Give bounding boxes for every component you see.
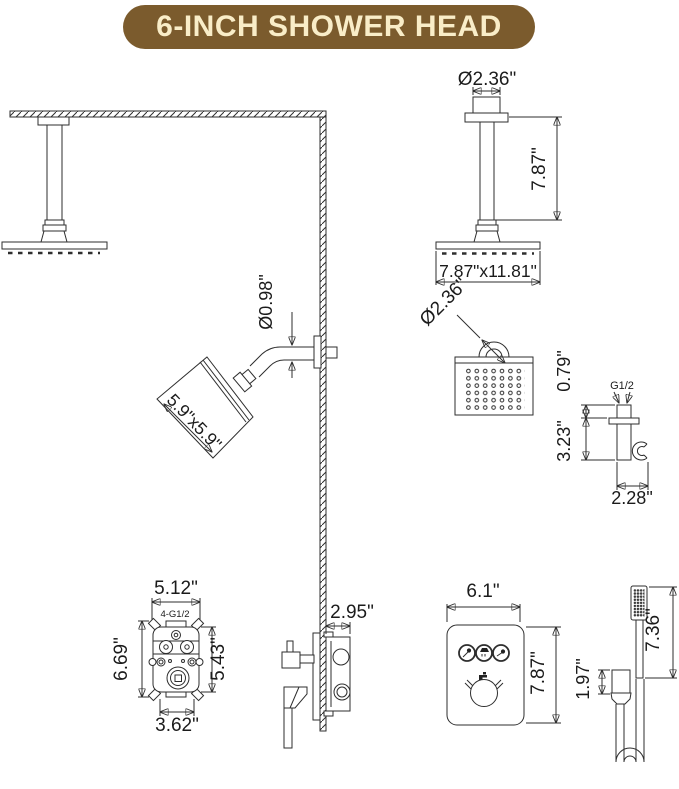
ceiling-shower-drawing [2,117,107,253]
technical-drawing: Ø2.36" 7.87" 7.87"x11.81" Ø2.36" [0,0,679,789]
wand-shower-icon [501,649,505,653]
dim-ceiling-arm-diameter: Ø2.36" [458,69,517,90]
dim-valve-overall-height: 6.69" [111,637,132,681]
hand-shower-icon [467,648,471,652]
spray-holes [465,367,525,410]
dim-holder-body-height: 3.23" [554,420,574,461]
label-holder-thread: G1/2 [610,380,634,392]
hand-shower-holder-drawing: G1/2 0.79" 3.23" 2.28" [554,350,653,508]
dim-valve-body-height: 5.43" [208,637,229,681]
valve-trim-plate-side [313,633,320,720]
valve-handle-side [282,652,300,668]
wall-bracket [612,670,630,693]
valve-side-drawing: 2.95" [282,602,374,748]
dim-valve-depth: 2.95" [330,602,374,623]
dim-ceiling-arm-length: 7.87" [529,147,550,191]
valve-front-drawing: 4-G1/2 5.12" 6.69" 5.43" 3.62" [111,578,229,736]
thermostatic-trim-drawing: 6.1" 7.87" [447,581,561,725]
product-dimension-diagram: 6-INCH SHOWER HEAD [0,0,679,789]
ceiling-mount-detail-drawing: Ø2.36" 7.87" 7.87"x11.81" [436,69,562,285]
dim-wand-length: 7.36" [643,608,664,652]
dim-holder-depth: 2.28" [611,488,652,508]
dim-valve-body-width: 3.62" [155,715,199,736]
shower-head-face-drawing: Ø2.36" [416,274,533,415]
ceiling-shower-plate [2,242,107,249]
hand-shower-drawing: 7.36" 1.97" [573,586,677,762]
label-valve-ports: 4-G1/2 [160,609,189,620]
wall-shower-drawing: 5.9"x5.9" Ø0.98" [157,274,337,458]
dim-valve-overall-width: 5.12" [154,578,198,599]
dim-holder-stub-height: 0.79" [554,350,574,391]
ceiling-shower-plate-detail [436,242,540,249]
dim-trim-height: 7.87" [528,651,549,695]
dim-bracket-height: 1.97" [573,658,593,699]
dim-wall-arm-diameter: Ø0.98" [256,274,276,329]
dim-trim-width: 6.1" [466,581,499,602]
